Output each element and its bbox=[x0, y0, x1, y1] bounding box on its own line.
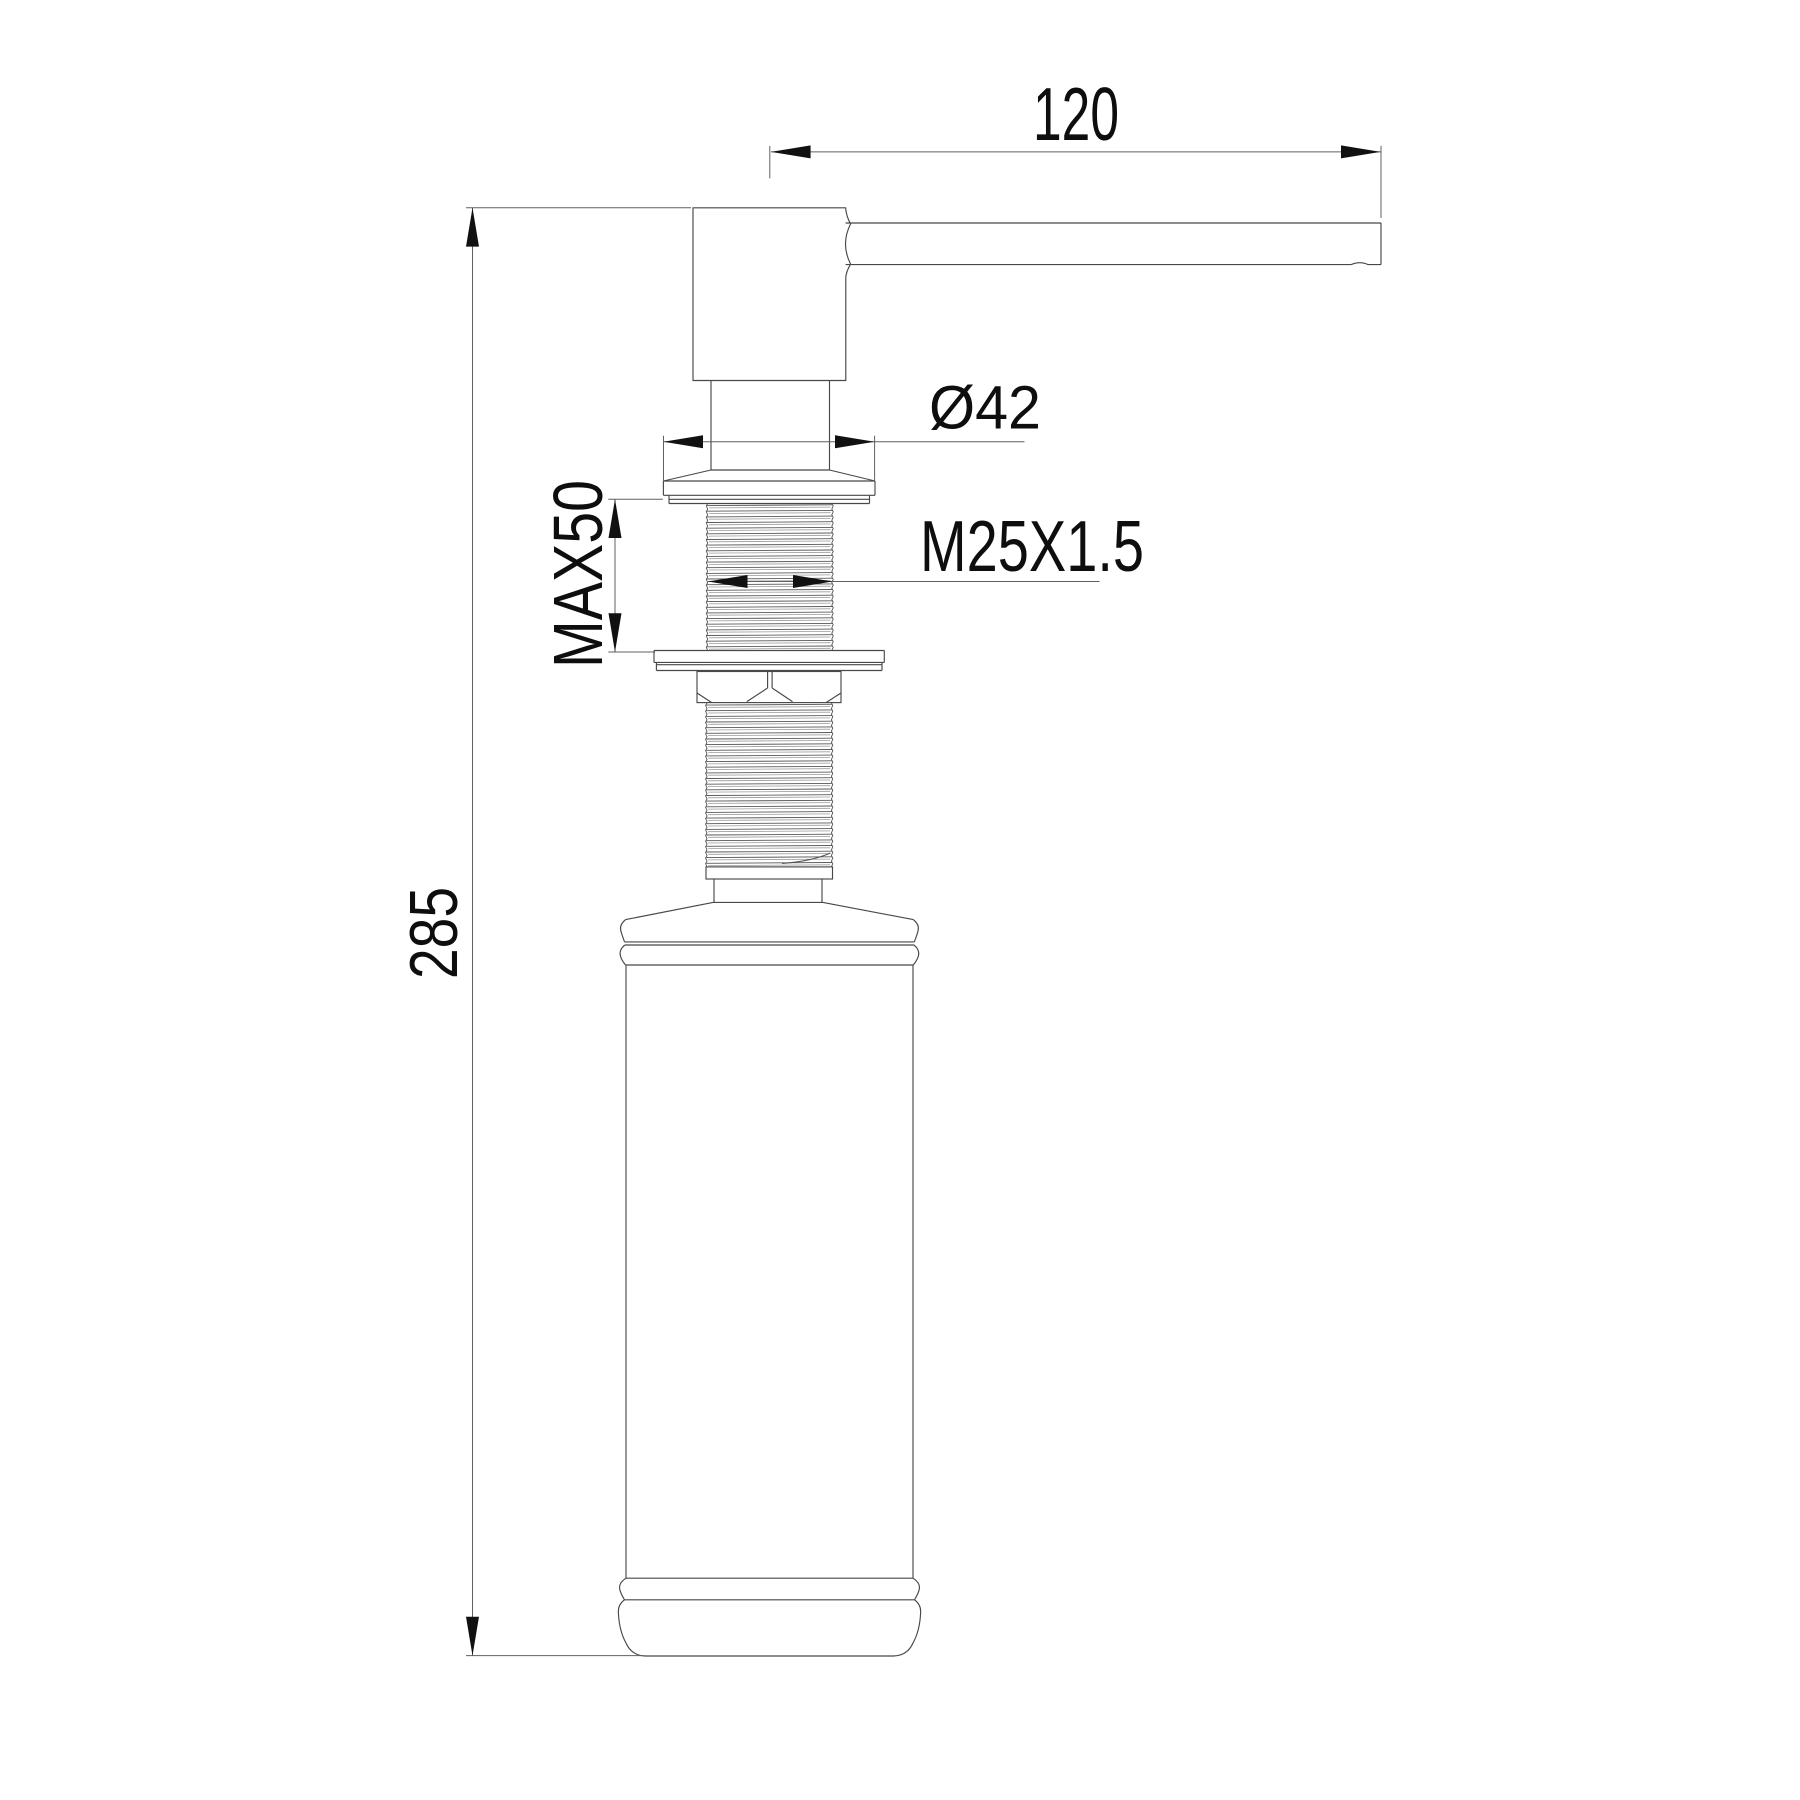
svg-text:120: 120 bbox=[1033, 72, 1119, 156]
svg-text:MAX50: MAX50 bbox=[539, 480, 617, 668]
svg-text:285: 285 bbox=[396, 887, 472, 979]
svg-text:Ø42: Ø42 bbox=[929, 374, 1041, 442]
svg-text:M25X1.5: M25X1.5 bbox=[920, 507, 1144, 587]
